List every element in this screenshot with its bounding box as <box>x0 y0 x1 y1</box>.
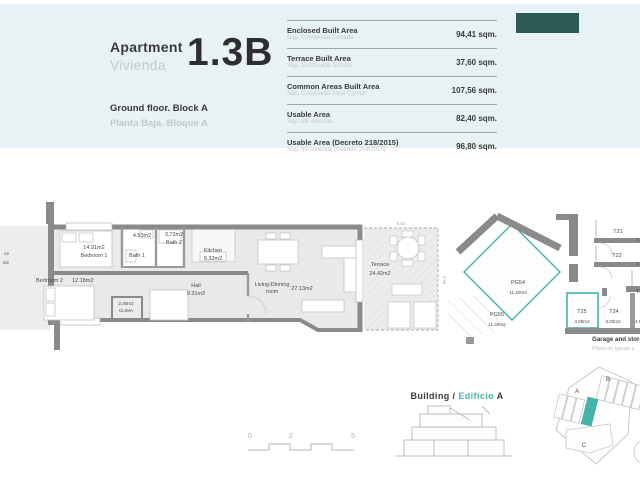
bath1-area: 4.53m2 <box>133 233 151 239</box>
area-title: Usable Area (Decreto 218/2015) <box>287 138 398 147</box>
floor-label-es: Planta Baja. Bloque A <box>110 118 208 129</box>
garage-caption-en: Garage and storage <box>592 336 640 343</box>
scale-bar-line <box>248 444 354 450</box>
scale-0: 0 <box>248 433 252 440</box>
clima-label: CLIMA <box>119 308 134 313</box>
neighbor-label: ce <box>4 251 9 256</box>
t26-area: 4.6 <box>635 319 640 324</box>
scale-5: 5 <box>351 433 355 440</box>
living-label: Living-Dinning <box>255 282 290 288</box>
pg55-area: 11.40m2 <box>488 322 506 327</box>
area-subtitle: Sup. Construida Zona Común <box>287 91 379 98</box>
hall-label: Hall <box>191 283 200 289</box>
t21-area: 3.9 <box>636 237 640 242</box>
block-a-units <box>554 390 599 427</box>
storage-rooms: T21 3.9 T22 3.9 T2 T25 3.00m2 T24 3.00m2… <box>556 214 640 334</box>
pg54-area: 11.40m2 <box>509 290 527 295</box>
terrace-depth-dim: 5.58 <box>442 276 447 285</box>
bedroom1-area: 14.91m2 <box>83 245 104 251</box>
block-c-label: C <box>582 443 587 449</box>
area-value: 107,56 sqm. <box>452 86 497 95</box>
terrace-label: Terrace <box>371 262 389 268</box>
t25-label: T25 <box>577 309 586 315</box>
bath1-label: Bath 1 <box>129 253 145 259</box>
table-row: Enclosed Built Area Sup. Construida Cerr… <box>287 20 497 48</box>
bath2-area: 3.72m2 <box>165 232 183 238</box>
area-subtitle: Sup. útil vivienda <box>287 119 332 126</box>
table-row: Common Areas Built Area Sup. Construida … <box>287 76 497 104</box>
areas-table: Enclosed Built Area Sup. Construida Cerr… <box>287 20 497 160</box>
living-label2: room <box>266 289 279 295</box>
table-row: Usable Area Sup. útil vivienda 82,40 sqm… <box>287 104 497 132</box>
block-b-label: B <box>606 377 610 383</box>
building-elevation <box>396 406 512 456</box>
area-subtitle: Sup. Construida Terraza <box>287 63 352 70</box>
block-a-label: A <box>575 389 579 395</box>
area-value: 82,40 sqm. <box>456 114 497 123</box>
garage-diagram: PG54 11.40m2 PG55 11.40m2 <box>448 214 640 352</box>
t22-area: 3.9 <box>636 261 640 266</box>
site-plan: A B C <box>554 367 640 465</box>
bath2-label: Bath 2 <box>166 240 182 246</box>
pg55-label: PG55 <box>490 312 504 318</box>
bedroom2-area: 12.18m2 <box>72 278 93 284</box>
scale-2: 2 <box>289 433 293 440</box>
plan-sheet: Apartment Vivienda 1.3B Ground floor. Bl… <box>0 0 640 480</box>
block-b-units <box>596 376 640 410</box>
brand-logo-box <box>516 13 579 33</box>
unit-number: 1.3B <box>187 31 273 75</box>
area-title: Common Areas Built Area <box>287 82 379 91</box>
t25-area: 3.00m2 <box>574 319 590 324</box>
pg54-label: PG54 <box>511 280 525 286</box>
table-row: Terrace Built Area Sup. Construida Terra… <box>287 48 497 76</box>
block-c-outline <box>566 424 613 453</box>
area-title: Enclosed Built Area <box>287 26 358 35</box>
header-panel: Apartment Vivienda 1.3B Ground floor. Bl… <box>0 4 640 148</box>
kitchen-label: Kitchen <box>204 248 222 254</box>
clima-area: 2.30m2 <box>118 301 134 306</box>
hall-area: 9.31m2 <box>187 291 205 297</box>
living-area: 27.13m2 <box>291 286 312 292</box>
floor-label-en: Ground floor. Block A <box>110 103 208 114</box>
garage-caption-es: Plaza de garaje y <box>592 346 635 352</box>
t23-label: T2 <box>636 289 640 295</box>
area-title: Usable Area <box>287 110 332 119</box>
terrace-area: 24.42m2 <box>369 271 390 277</box>
area-title: Terrace Built Area <box>287 54 352 63</box>
apartment-label-es: Vivienda <box>110 57 166 73</box>
neighbor-label: m2 <box>3 260 10 265</box>
area-value: 94,41 sqm. <box>456 30 497 39</box>
terrace-width-dim: 6.62 <box>397 221 406 226</box>
floor-plan-drawing: ce m2 <box>0 150 640 480</box>
apartment-plan: ce m2 <box>0 202 447 350</box>
roundabout <box>634 439 640 465</box>
t21-label: T21 <box>613 229 622 235</box>
area-value: 37,60 sqm. <box>456 58 497 67</box>
t22-label: T22 <box>612 253 621 259</box>
t24-label: T24 <box>609 309 618 315</box>
bedroom1-label: Bedroom 1 <box>81 253 108 259</box>
apartment-label-en: Apartment <box>110 39 183 55</box>
area-subtitle: Sup. Construida Cerrada <box>287 35 358 42</box>
bedroom2-label: Bedroom 2 <box>36 278 63 284</box>
t24-area: 3.00m2 <box>605 319 621 324</box>
scale-bar: 0 2 5 <box>248 433 355 450</box>
kitchen-area: 8.32m2 <box>204 256 222 262</box>
